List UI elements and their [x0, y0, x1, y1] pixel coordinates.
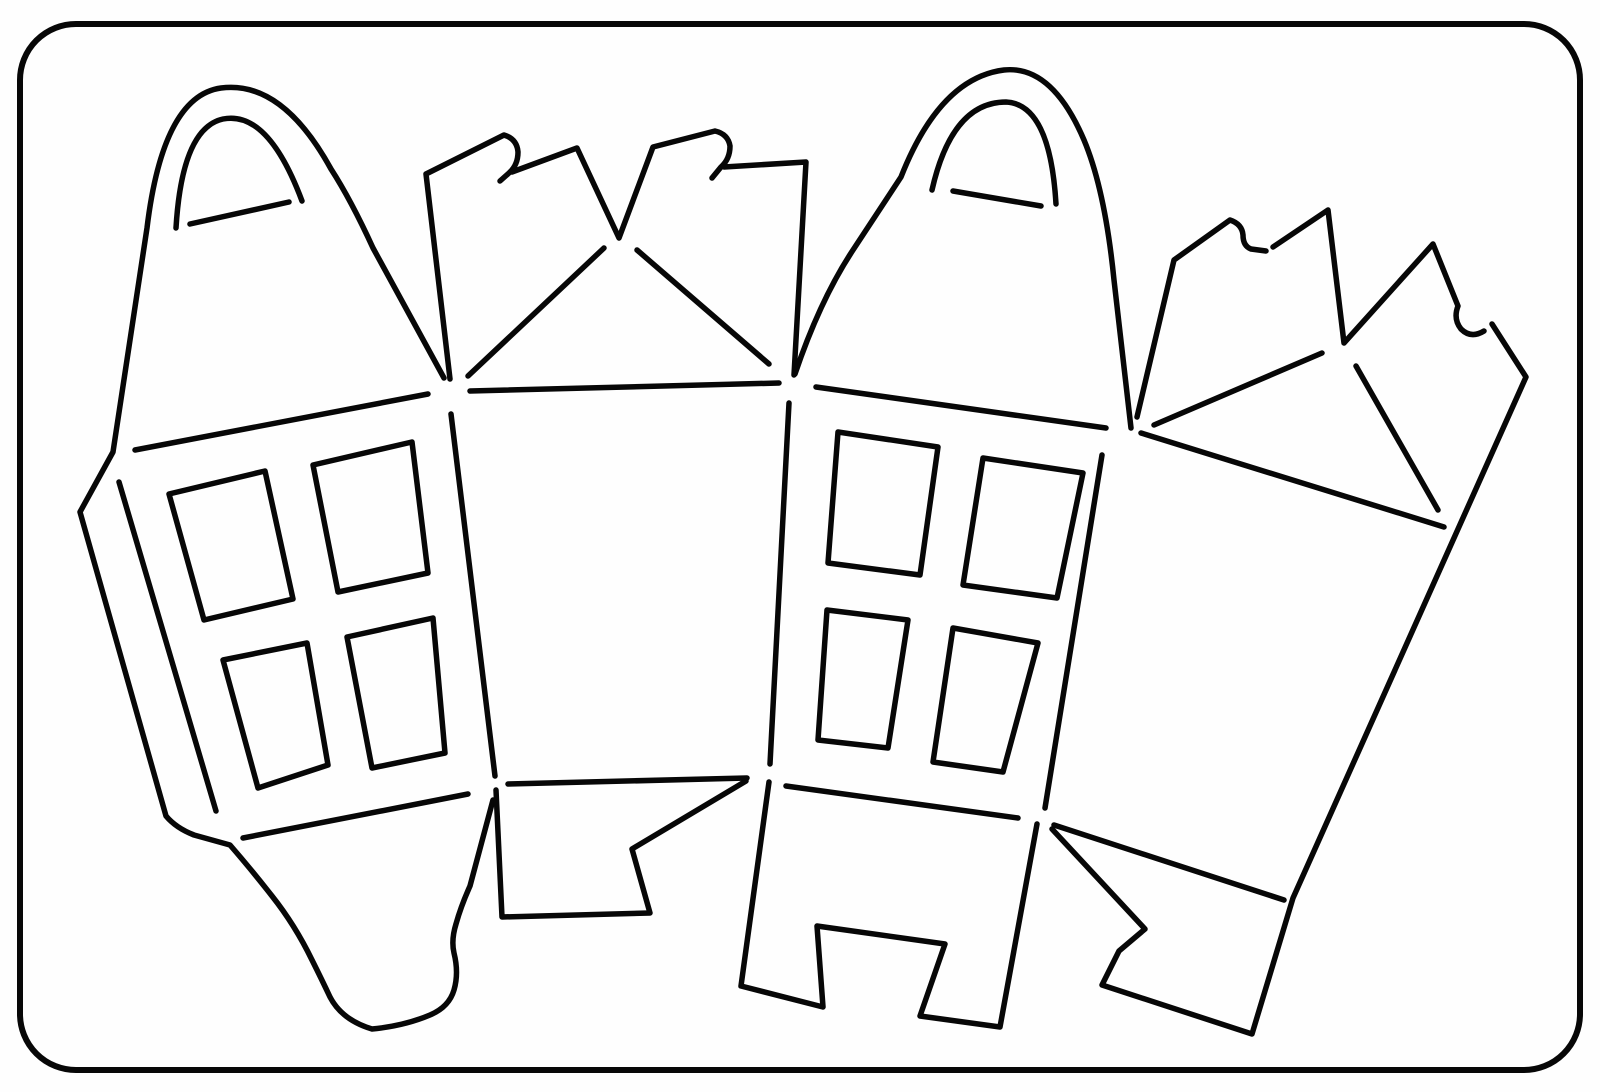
stencil-sheet	[0, 0, 1600, 1092]
house2-window-bottom-right	[933, 628, 1038, 772]
house1-window-top-right	[313, 442, 428, 592]
house1-fanlight-chord	[190, 202, 289, 224]
stencil-border	[20, 24, 1580, 1070]
house2-wall-top-fold	[816, 387, 1106, 428]
house2-window-top-left	[828, 432, 938, 575]
house1-wall-left-fold	[119, 482, 216, 811]
house2-window-bottom-left	[818, 610, 908, 748]
dieline-svg	[0, 0, 1600, 1092]
side-panel1-roof-diagonal-left	[468, 248, 604, 376]
house1-window-top-left	[169, 471, 293, 620]
house2-window-top-right	[963, 458, 1083, 598]
house1-wall-top-fold	[135, 394, 428, 450]
side-panel2-roof-diagonal-left	[1154, 353, 1322, 425]
roof-flap-group2-vee-peak-and-hook-tab	[1273, 210, 1484, 343]
house1-window-bottom-left	[223, 643, 328, 788]
side-panel2-roof-fold-line	[1141, 433, 1444, 527]
house2-fanlight-chord	[953, 191, 1041, 206]
side-panel1-roof-diagonal-right	[637, 250, 769, 364]
roof-flap-group1-right-edge	[724, 162, 806, 375]
house1-wall-bottom-fold	[243, 794, 468, 838]
side-panel2-roof-diagonal-right	[1356, 366, 1438, 510]
roof-flap-group1-center-vee-and-second-hook-tab	[512, 131, 730, 238]
house2-bottom-tab-two-feet	[741, 782, 1037, 1027]
side-panel1-bottom-fold-line	[508, 778, 747, 784]
house1-wall-right-fold	[451, 414, 495, 776]
side-panel1-bottom-flap-notched	[496, 781, 746, 917]
side-panel1-roof-fold-line	[470, 383, 779, 391]
side-panel2-bottom-fold-line	[1054, 825, 1284, 900]
house2-wall-left-fold	[770, 403, 789, 764]
side-panel2-right-edge-and-bottom-tab-notched	[1052, 324, 1526, 1034]
house2-fanlight-arch	[932, 102, 1056, 204]
house2-wall-bottom-fold	[786, 786, 1018, 818]
house1-window-bottom-right	[347, 618, 445, 768]
